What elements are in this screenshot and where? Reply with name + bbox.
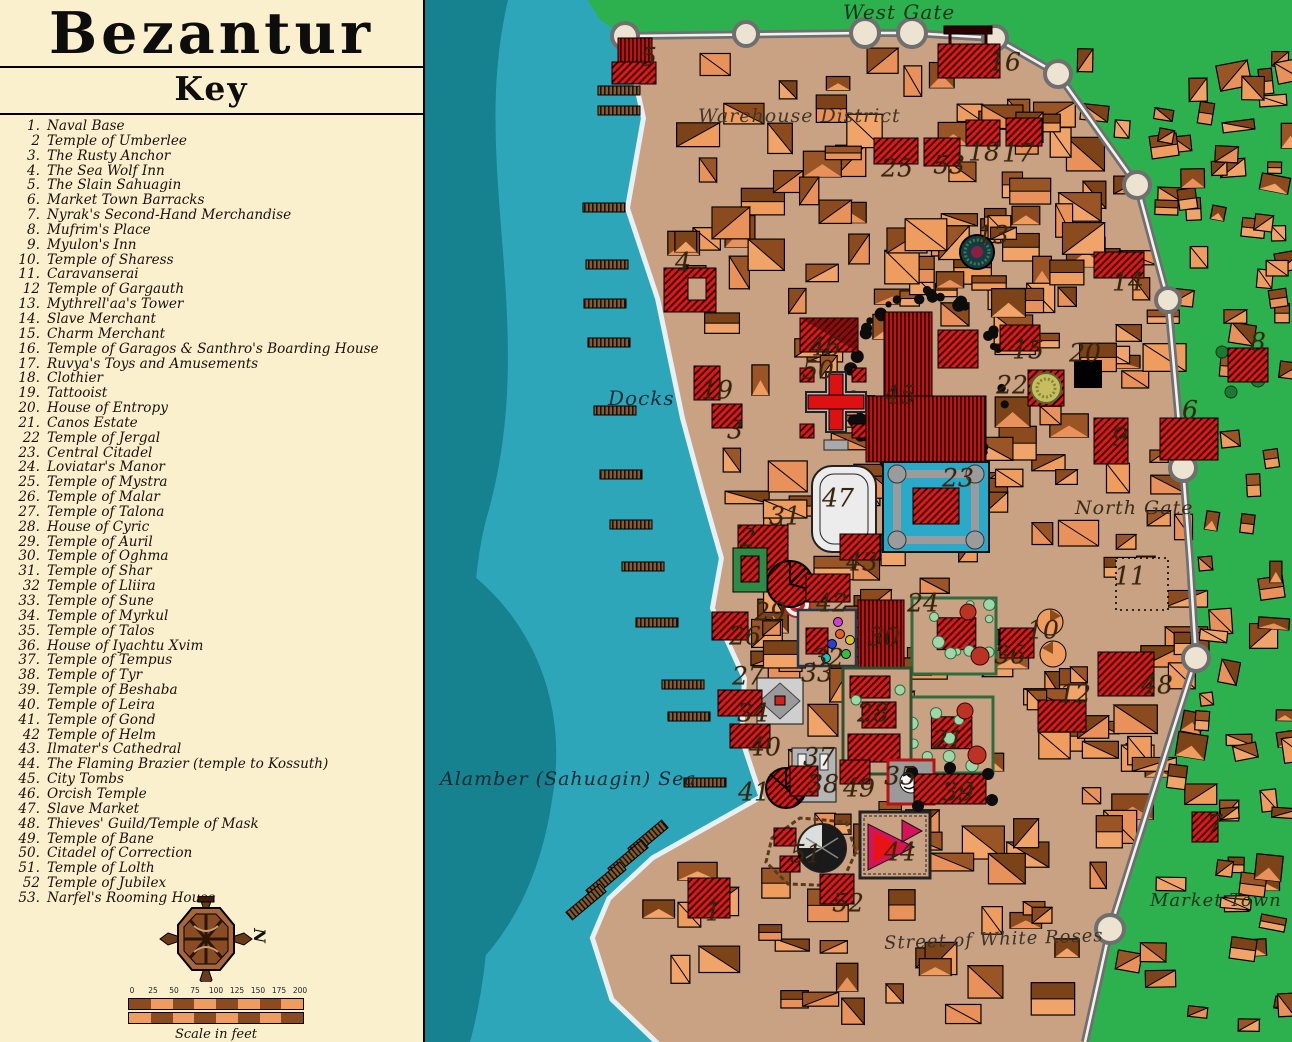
map-marker-28: 28 [857, 699, 889, 728]
key-item-4: 4.The Sea Wolf Inn [0, 164, 420, 179]
key-item-22: 22Temple of Jergal [0, 431, 420, 446]
map-label-warehouse-district: Warehouse District [698, 105, 901, 127]
map-marker-13: 13 [977, 221, 1009, 250]
key-item-21: 21.Canos Estate [0, 416, 420, 431]
scale-tick: 150 [251, 986, 265, 995]
map-marker-22: 22 [996, 371, 1028, 400]
map-marker-17: 17 [1002, 139, 1034, 168]
compass-rose: N [156, 896, 256, 982]
map-marker-37: 37 [803, 743, 835, 772]
scale-segment [129, 999, 151, 1009]
map-marker-34: 34 [737, 699, 769, 728]
map-marker-21: 21 [932, 726, 964, 755]
key-item-42: 42Temple of Helm [0, 728, 420, 743]
map-marker-1: 1 [705, 898, 721, 927]
scale-segment [281, 999, 303, 1009]
city-map: West GateWarehouse DistrictDocksNorth Ga… [425, 0, 1292, 1042]
key-item-7: 7.Nyrak's Second-Hand Merchandise [0, 208, 420, 223]
key-item-50: 50.Citadel of Correction [0, 846, 420, 861]
map-label-alamber-sahuagin-sea: Alamber (Sahuagin) Sea [440, 768, 697, 790]
key-item-2: 2Temple of Umberlee [0, 134, 420, 149]
key-item-29: 29.Temple of Auril [0, 535, 420, 550]
map-marker-23: 23 [942, 464, 974, 493]
scale-segment [260, 1013, 282, 1023]
scale-segment [151, 1013, 173, 1023]
scale-tick: 75 [190, 986, 200, 995]
key-heading: Key [0, 68, 423, 111]
key-item-30: 30.Temple of Oghma [0, 549, 420, 564]
map-marker-24: 24 [907, 589, 939, 618]
map-marker-50: 50 [802, 356, 834, 385]
map-marker-18: 18 [968, 138, 1000, 167]
scale-tick: 200 [293, 986, 307, 995]
scale-segment [216, 999, 238, 1009]
key-item-52: 52Temple of Jubilex [0, 876, 420, 891]
map-marker-14: 14 [1112, 268, 1144, 297]
map-marker-39: 39 [942, 778, 974, 807]
map-marker-30: 30 [868, 623, 900, 652]
key-item-20: 20.House of Entropy [0, 401, 420, 416]
key-item-28: 28.House of Cyric [0, 520, 420, 535]
key-item-36: 36.House of Iyachtu Xvim [0, 639, 420, 654]
map-marker-52: 52 [832, 889, 864, 918]
page-title: Bezantur [0, 4, 423, 64]
key-item-16: 16.Temple of Garagos & Santhro's Boardin… [0, 342, 420, 357]
key-item-1: 1.Naval Base [0, 119, 420, 134]
key-item-3: 3.The Rusty Anchor [0, 149, 420, 164]
key-item-51: 51.Temple of Lolth [0, 861, 420, 876]
map-marker-42: 42 [816, 589, 848, 618]
key-item-27: 27.Temple of Talona [0, 505, 420, 520]
map-marker-7: 7 [1207, 810, 1223, 839]
scale-segment [194, 1013, 216, 1023]
map-marker-20: 20 [1069, 339, 1101, 368]
map-marker-38: 38 [807, 770, 839, 799]
scale-tick: 50 [169, 986, 179, 995]
map-marker-10: 10 [1027, 616, 1059, 645]
key-item-43: 43.Ilmater's Cathedral [0, 742, 420, 757]
map-marker-15: 15 [1012, 336, 1044, 365]
key-item-47: 47.Slave Market [0, 802, 420, 817]
key-item-45: 45.City Tombs [0, 772, 420, 787]
key-item-44: 44.The Flaming Brazier (temple to Kossut… [0, 757, 420, 772]
map-marker-51: 51 [790, 840, 822, 869]
scale-segment [216, 1013, 238, 1023]
key-item-11: 11.Caravanserai [0, 267, 420, 282]
map-marker-19: 19 [701, 376, 733, 405]
key-item-39: 39.Temple of Beshaba [0, 683, 420, 698]
key-item-35: 35.Temple of Talos [0, 624, 420, 639]
map-marker-33: 33 [801, 659, 833, 688]
scale-segment [173, 1013, 195, 1023]
map-marker-31: 31 [769, 502, 801, 531]
map-marker-45: 45 [884, 381, 916, 410]
map-marker-49: 49 [843, 774, 875, 803]
key-item-12: 12Temple of Gargauth [0, 282, 420, 297]
map-label-market-town: Market Town [1150, 890, 1282, 911]
scale-segment [238, 1013, 260, 1023]
map-marker-35: 35 [884, 762, 916, 791]
key-item-15: 15.Charm Merchant [0, 327, 420, 342]
key-item-6: 6.Market Town Barracks [0, 193, 420, 208]
compass-north-label: N [250, 928, 269, 943]
map-marker-9: 9 [1112, 423, 1128, 452]
key-item-8: 8.Mufrim's Place [0, 223, 420, 238]
scale-tick: 175 [272, 986, 286, 995]
key-list: 1.Naval Base2Temple of Umberlee3.The Rus… [0, 119, 420, 906]
scale-bar-row [128, 998, 304, 1010]
key-item-5: 5.The Slain Sahuagin [0, 178, 420, 193]
map-marker-48: 48 [1141, 671, 1173, 700]
key-item-33: 33.Temple of Sune [0, 594, 420, 609]
key-item-25: 25.Temple of Mystra [0, 475, 420, 490]
key-item-32: 32Temple of Lliira [0, 579, 420, 594]
map-marker-27: 27 [732, 662, 764, 691]
key-item-17: 17.Ruvya's Toys and Amusements [0, 357, 420, 372]
key-item-13: 13.Mythrell'aa's Tower [0, 297, 420, 312]
scale-segment [238, 999, 260, 1009]
key-item-9: 9.Myulon's Inn [0, 238, 420, 253]
map-marker-11: 11 [1114, 562, 1146, 591]
map-marker-8: 8 [1250, 328, 1266, 357]
scale-segment [129, 1013, 151, 1023]
map-marker-53: 53 [933, 151, 965, 180]
map-marker-47: 47 [822, 484, 854, 513]
scale-tick: 25 [148, 986, 158, 995]
map-marker-16: 16 [989, 48, 1021, 77]
map-marker-12: 12 [1059, 680, 1091, 709]
key-item-46: 46.Orcish Temple [0, 787, 420, 802]
scale-tick: 125 [230, 986, 244, 995]
map-marker-36: 36 [994, 641, 1026, 670]
divider [0, 113, 423, 115]
map-marker-4: 4 [675, 248, 691, 277]
key-item-48: 48.Thieves' Guild/Temple of Mask [0, 817, 420, 832]
scale-segment [173, 999, 195, 1009]
key-item-26: 26.Temple of Malar [0, 490, 420, 505]
map-marker-3: 3 [727, 416, 743, 445]
map-marker-5: 5 [641, 43, 657, 72]
map-label-north-gate: North Gate [1075, 497, 1193, 519]
map-marker-29: 29 [754, 598, 786, 627]
scale-segment [260, 999, 282, 1009]
scale-segment [281, 1013, 303, 1023]
key-item-40: 40.Temple of Leira [0, 698, 420, 713]
map-marker-40: 40 [749, 733, 781, 762]
key-panel: Bezantur Key 1.Naval Base2Temple of Umbe… [0, 0, 425, 1042]
compass-rose-icon [156, 896, 256, 982]
scale-tick: 100 [209, 986, 223, 995]
scale-caption: Scale in feet [128, 1027, 304, 1042]
scale-bar: 0255075100125150175200 Scale in feet [128, 986, 304, 1038]
key-item-37: 37.Temple of Tempus [0, 653, 420, 668]
scale-segment [151, 999, 173, 1009]
key-item-49: 49.Temple of Bane [0, 832, 420, 847]
map-marker-43: 43 [846, 548, 878, 577]
map-marker-41: 41 [738, 778, 770, 807]
key-item-41: 41.Temple of Gond [0, 713, 420, 728]
map-label-docks: Docks [608, 386, 675, 410]
key-item-10: 10.Temple of Sharess [0, 253, 420, 268]
key-item-34: 34.Temple of Myrkul [0, 609, 420, 624]
scale-bar-row [128, 1012, 304, 1024]
scale-tick: 0 [130, 986, 135, 995]
map-marker-25: 25 [881, 154, 913, 183]
map-marker-44: 44 [884, 838, 916, 867]
key-item-31: 31.Temple of Shar [0, 564, 420, 579]
key-item-18: 18.Clothier [0, 371, 420, 386]
key-item-14: 14.Slave Merchant [0, 312, 420, 327]
scale-segment [194, 999, 216, 1009]
map-label-west-gate: West Gate [843, 0, 955, 24]
key-item-38: 38.Temple of Tyr [0, 668, 420, 683]
key-item-23: 23.Central Citadel [0, 446, 420, 461]
map-marker-6: 6 [1182, 396, 1198, 425]
key-item-19: 19.Tattooist [0, 386, 420, 401]
scale-tick-labels: 0255075100125150175200 [128, 986, 304, 996]
key-item-24: 24.Loviatar's Manor [0, 460, 420, 475]
bezantur-map-page: Bezantur Key 1.Naval Base2Temple of Umbe… [0, 0, 1292, 1042]
map-marker-2: 2 [740, 524, 756, 553]
